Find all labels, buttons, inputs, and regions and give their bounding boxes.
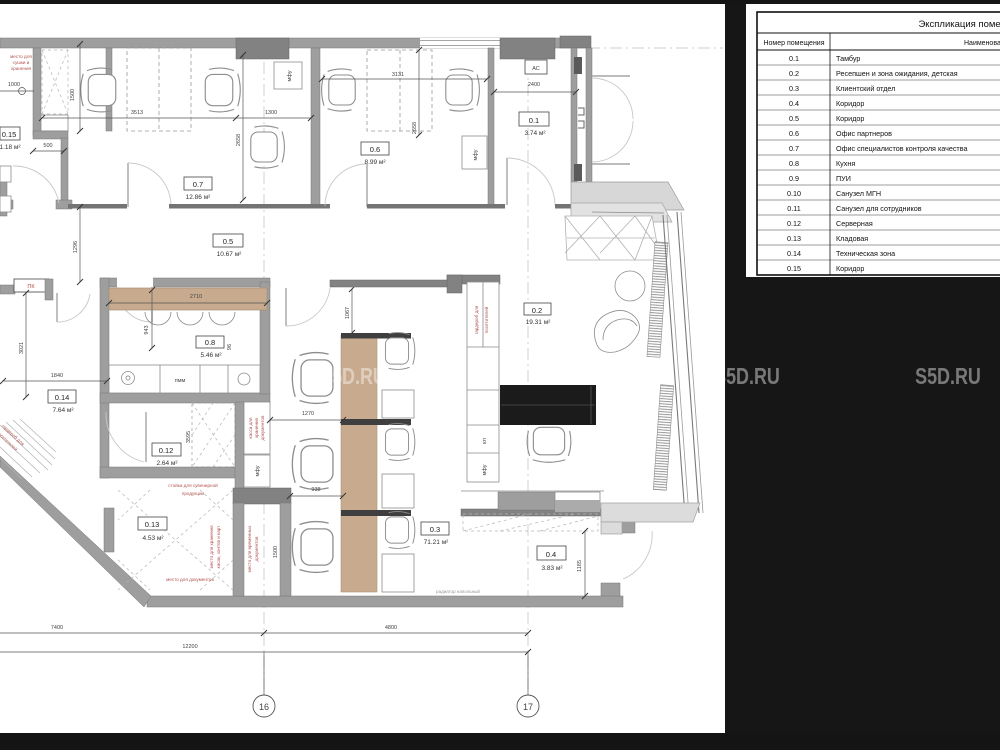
- svg-text:Ресепшен и зона ожидания, детс: Ресепшен и зона ожидания, детская: [836, 69, 958, 78]
- svg-text:кл: кл: [482, 438, 488, 444]
- svg-text:1500: 1500: [70, 89, 76, 101]
- svg-text:пмм: пмм: [175, 378, 186, 384]
- svg-text:96: 96: [227, 344, 233, 350]
- svg-text:стойка для сувенирной: стойка для сувенирной: [168, 482, 218, 488]
- svg-text:Коридор: Коридор: [836, 99, 864, 108]
- svg-text:5.46 м²: 5.46 м²: [200, 352, 222, 359]
- svg-text:500: 500: [43, 143, 52, 149]
- svg-text:0.8: 0.8: [205, 338, 215, 347]
- svg-text:2.64 м²: 2.64 м²: [156, 460, 178, 467]
- svg-text:0.11: 0.11: [787, 204, 800, 213]
- svg-text:0.2: 0.2: [789, 69, 799, 78]
- svg-text:0.6: 0.6: [789, 129, 799, 138]
- svg-text:3021: 3021: [19, 342, 25, 354]
- svg-text:продукции: продукции: [182, 491, 205, 496]
- svg-text:0.12: 0.12: [787, 219, 801, 228]
- svg-text:ПУИ: ПУИ: [836, 174, 851, 183]
- svg-text:Техническая зона: Техническая зона: [836, 249, 895, 258]
- svg-text:0.2: 0.2: [532, 306, 542, 315]
- svg-text:Наименование: Наименование: [964, 40, 1000, 47]
- svg-text:1.18 м²: 1.18 м²: [0, 144, 21, 151]
- svg-text:0.14: 0.14: [55, 393, 70, 402]
- svg-text:943: 943: [144, 325, 150, 334]
- svg-text:0.1: 0.1: [789, 54, 799, 63]
- svg-text:ПК: ПК: [27, 284, 35, 290]
- svg-text:12200: 12200: [182, 644, 197, 650]
- svg-text:4800: 4800: [385, 625, 397, 631]
- svg-text:0.4: 0.4: [789, 99, 799, 108]
- svg-text:7.64 м²: 7.64 м²: [52, 407, 74, 414]
- svg-text:Серверная: Серверная: [836, 219, 873, 228]
- svg-text:S5D.RU: S5D.RU: [320, 364, 386, 390]
- svg-text:документов: документов: [260, 415, 265, 440]
- svg-text:S5D.RU: S5D.RU: [915, 364, 981, 390]
- svg-text:16: 16: [259, 702, 269, 712]
- svg-text:мфу: мфу: [482, 464, 488, 475]
- svg-text:место для хранения: место для хранения: [209, 525, 214, 569]
- svg-text:2400: 2400: [528, 82, 540, 88]
- svg-text:Кухня: Кухня: [836, 159, 855, 168]
- svg-text:0.7: 0.7: [193, 180, 203, 189]
- svg-text:4.53 м²: 4.53 м²: [142, 535, 164, 542]
- svg-text:1296: 1296: [73, 241, 79, 253]
- svg-text:Офис партнеров: Офис партнеров: [836, 129, 892, 138]
- svg-text:место для документов: место для документов: [166, 577, 214, 582]
- svg-text:0.5: 0.5: [223, 237, 233, 246]
- svg-text:3513: 3513: [131, 110, 143, 116]
- svg-text:0.3: 0.3: [430, 525, 440, 534]
- svg-text:касок, зонтов и карт: касок, зонтов и карт: [216, 525, 221, 569]
- svg-text:сушки и: сушки и: [13, 60, 30, 65]
- svg-text:1185: 1185: [577, 560, 583, 572]
- svg-text:0.6: 0.6: [370, 145, 380, 154]
- svg-text:Коридор: Коридор: [836, 264, 864, 273]
- svg-text:0.15: 0.15: [787, 264, 801, 273]
- svg-text:АС: АС: [532, 66, 540, 72]
- svg-text:3595: 3595: [186, 431, 192, 443]
- svg-text:мфу: мфу: [473, 149, 479, 160]
- svg-text:17: 17: [523, 702, 533, 712]
- svg-text:19.31 м²: 19.31 м²: [526, 319, 552, 326]
- svg-text:1067: 1067: [345, 307, 351, 319]
- svg-text:0.1: 0.1: [529, 116, 539, 125]
- svg-text:радиатор напольный: радиатор напольный: [436, 588, 480, 594]
- svg-text:гардероб для: гардероб для: [474, 305, 479, 334]
- svg-text:0.5: 0.5: [789, 114, 799, 123]
- svg-text:2710: 2710: [190, 294, 202, 300]
- svg-text:хранения: хранения: [11, 66, 32, 71]
- svg-text:0.12: 0.12: [159, 446, 174, 455]
- svg-text:Клиентский отдел: Клиентский отдел: [836, 84, 895, 93]
- svg-text:мфу: мфу: [255, 465, 261, 476]
- svg-text:3131: 3131: [392, 72, 404, 78]
- svg-text:0.13: 0.13: [787, 234, 801, 243]
- svg-text:3.74 м²: 3.74 м²: [524, 130, 546, 137]
- svg-text:0.7: 0.7: [789, 144, 799, 153]
- svg-text:Тамбур: Тамбур: [836, 54, 860, 63]
- svg-text:Номер помещения: Номер помещения: [763, 40, 824, 47]
- svg-text:мфу: мфу: [287, 70, 293, 81]
- svg-text:Коридор: Коридор: [836, 114, 864, 123]
- svg-text:1500: 1500: [273, 546, 279, 558]
- svg-text:1840: 1840: [51, 373, 63, 379]
- svg-text:12.86 м²: 12.86 м²: [186, 194, 212, 201]
- svg-text:1300: 1300: [265, 110, 277, 116]
- svg-text:0.3: 0.3: [789, 84, 799, 93]
- svg-text:0.8: 0.8: [789, 159, 799, 168]
- svg-text:3.83 м²: 3.83 м²: [541, 565, 563, 572]
- svg-text:Санузел МГН: Санузел МГН: [836, 189, 881, 198]
- svg-text:1000: 1000: [8, 82, 20, 88]
- svg-text:Кладовая: Кладовая: [836, 234, 868, 243]
- svg-text:хранения: хранения: [254, 417, 259, 438]
- svg-text:0.10: 0.10: [787, 189, 801, 198]
- svg-text:7400: 7400: [51, 625, 63, 631]
- svg-text:0.13: 0.13: [145, 520, 160, 529]
- svg-text:Санузел для сотрудников: Санузел для сотрудников: [836, 204, 922, 213]
- svg-text:Офис специалистов контроля кач: Офис специалистов контроля качества: [836, 144, 967, 153]
- svg-text:документов: документов: [254, 536, 259, 561]
- svg-text:0.14: 0.14: [787, 249, 801, 258]
- svg-text:место для временных: место для временных: [247, 525, 252, 573]
- svg-text:Экспликация помещений: Экспликация помещений: [918, 19, 1000, 30]
- svg-text:касса для: касса для: [248, 417, 253, 438]
- svg-text:место для: место для: [10, 54, 32, 59]
- svg-text:71.21 м²: 71.21 м²: [424, 539, 450, 546]
- svg-text:10.67 м²: 10.67 м²: [217, 251, 243, 258]
- svg-text:2658: 2658: [412, 122, 418, 134]
- svg-text:2658: 2658: [236, 134, 242, 146]
- svg-text:8.99 м²: 8.99 м²: [364, 159, 386, 166]
- svg-text:0.15: 0.15: [2, 130, 17, 139]
- svg-text:938: 938: [311, 487, 320, 493]
- svg-text:S5D.RU: S5D.RU: [714, 364, 780, 390]
- svg-text:0.9: 0.9: [789, 174, 799, 183]
- svg-text:0.4: 0.4: [546, 550, 556, 559]
- svg-text:посетителей: посетителей: [483, 306, 489, 333]
- svg-text:1270: 1270: [302, 411, 314, 417]
